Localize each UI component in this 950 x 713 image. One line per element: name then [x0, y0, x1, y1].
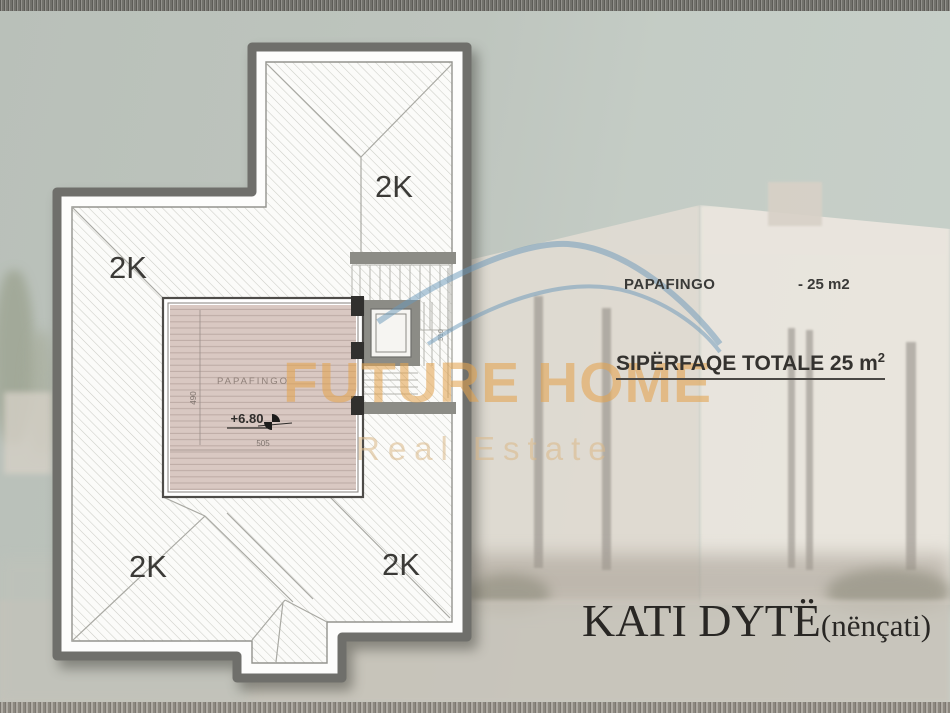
roof-label-top-right: 2K	[375, 169, 413, 204]
page-title: KATI DYTË (nënçati)	[582, 594, 931, 647]
roof-label-bottom-left: 2K	[129, 549, 167, 584]
page-title-main: KATI DYTË	[582, 594, 821, 647]
elevation-label: +6.80	[231, 411, 264, 426]
page-title-sub: (nënçati)	[821, 608, 931, 644]
watermark-tagline-text: Real Estate	[356, 430, 615, 468]
page: 510 PAPAFINGO 490 +6.80 505 2K 2K 2K 2K	[0, 0, 950, 713]
legend-room-area: - 25 m2	[798, 276, 850, 293]
room-name-label: PAPAFINGO	[217, 376, 289, 387]
legend-total-text: SIPËRFAQE TOTALE 25 m	[616, 352, 878, 375]
horizontal-dimension-label: 505	[256, 439, 270, 448]
legend-total-superscript: 2	[878, 350, 885, 365]
legend-room-label: PAPAFINGO	[624, 276, 715, 293]
roof-label-top-left: 2K	[109, 250, 147, 285]
roof-label-bottom-right: 2K	[382, 547, 420, 582]
watermark-house-logo-icon	[368, 222, 738, 367]
wall-pier	[351, 296, 364, 316]
vertical-dimension-label: 490	[189, 391, 198, 405]
legend-total-area: SIPËRFAQE TOTALE 25 m2	[616, 350, 885, 380]
